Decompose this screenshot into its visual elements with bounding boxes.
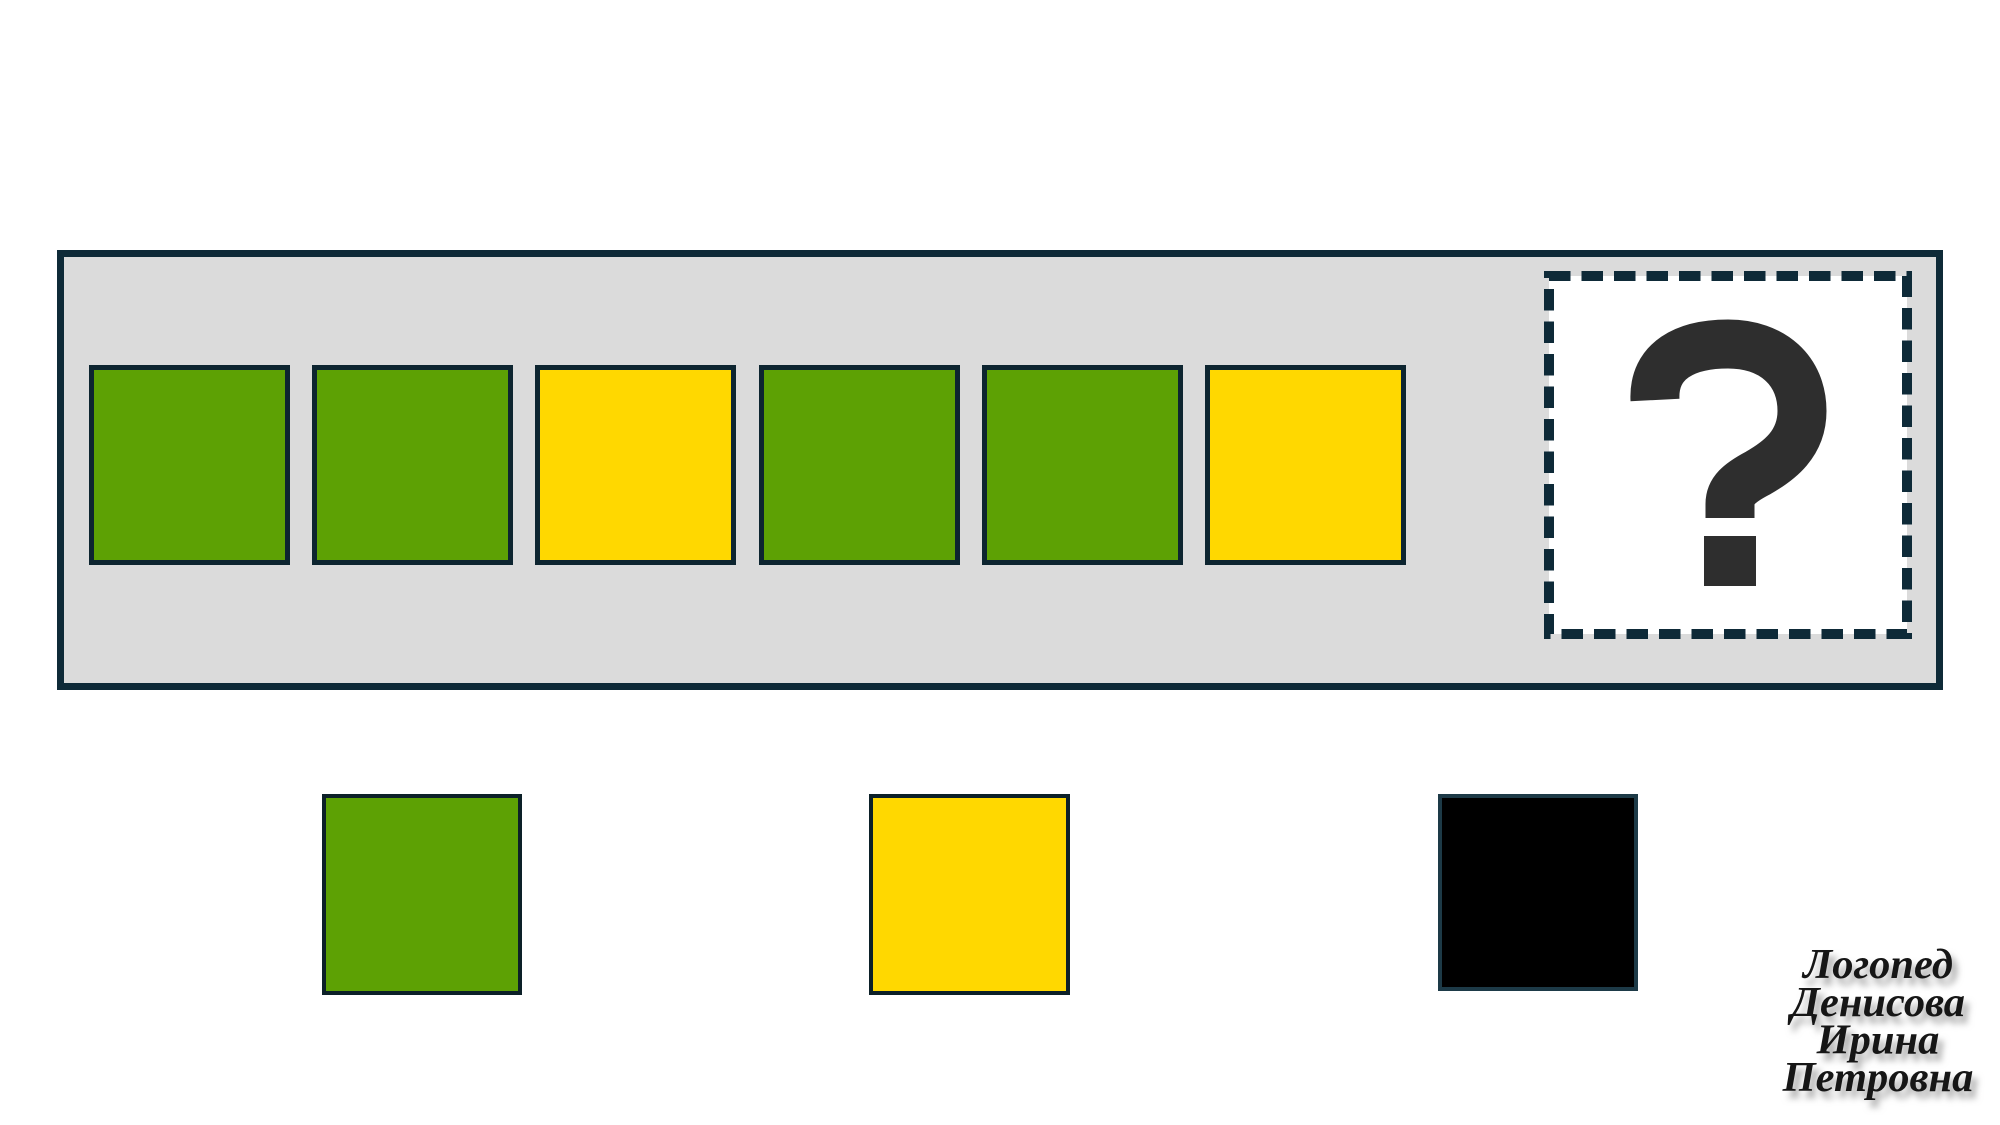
svg-text:Петровна: Петровна — [1782, 1054, 1974, 1101]
